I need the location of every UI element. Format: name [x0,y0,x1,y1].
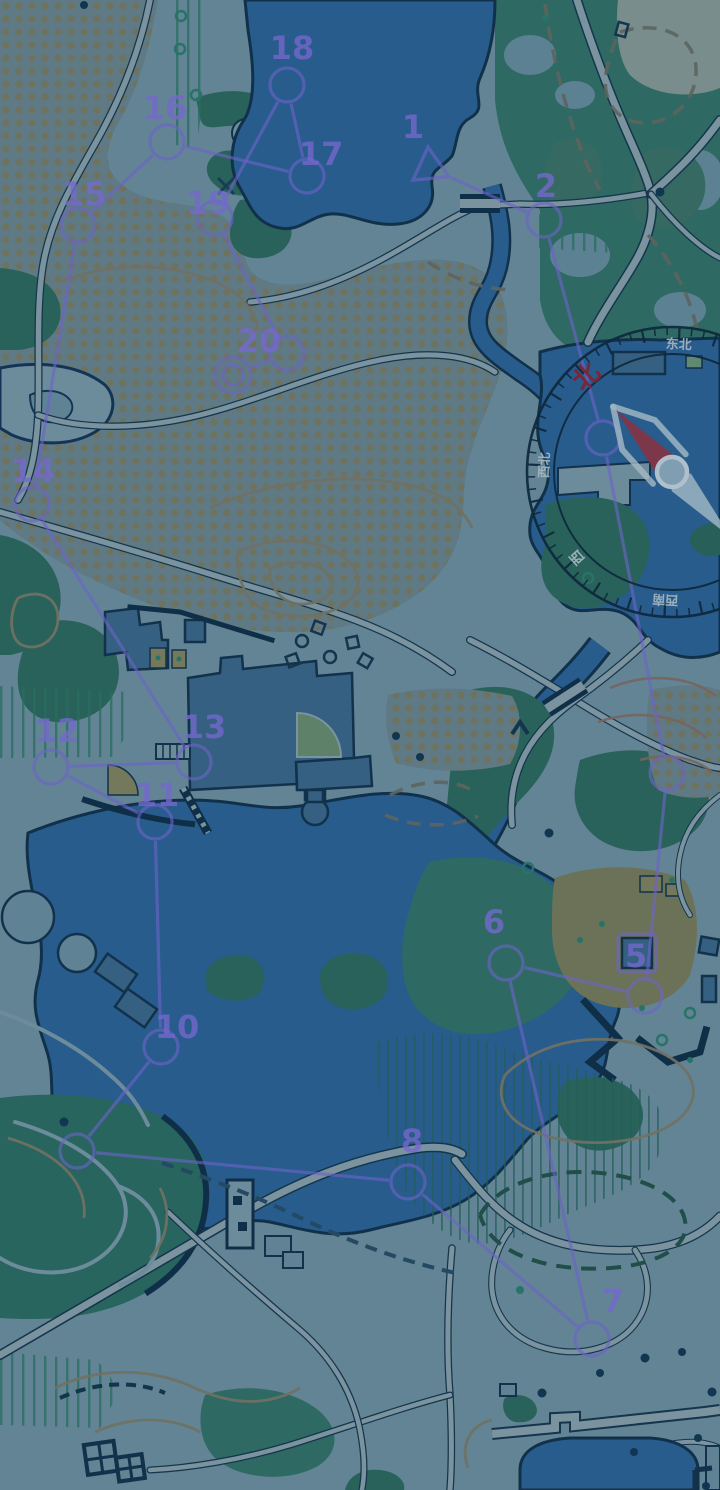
map-canvas: 1256781011121314151617181920 北东北西南西西北 [0,0,720,1490]
map-screen[interactable]: 1256781011121314151617181920 北东北西南西西北 [0,0,720,1490]
screen-tint-overlay [0,0,720,1490]
